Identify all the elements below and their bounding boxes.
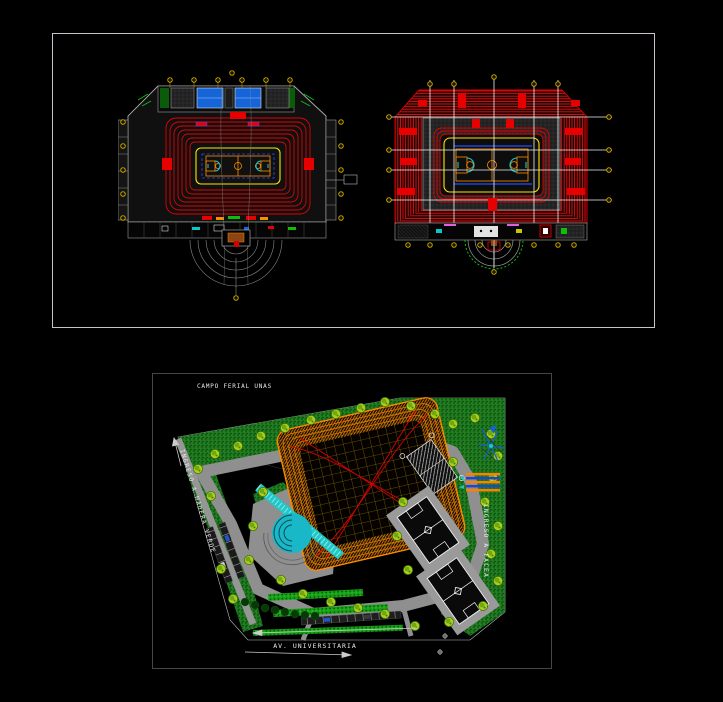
site-plan: CAMPO FERIAL UNAS INGRESO A MADERA VERDE…	[153, 374, 549, 666]
label-campo-ferial: CAMPO FERIAL UNAS	[197, 383, 272, 390]
first-floor-plan	[118, 70, 358, 306]
label-ingreso-facea: INGRESO A FACEA	[482, 504, 489, 578]
top-rooms-band	[138, 86, 314, 112]
upper-tier-plan	[384, 72, 614, 300]
survey-marks	[437, 633, 448, 655]
entrance-arcs	[465, 240, 523, 274]
bottom-rooms-band	[395, 223, 587, 240]
label-av-universitaria: AV. UNIVERSITARIA	[273, 642, 357, 650]
entrance-plaza-arcs	[190, 230, 282, 300]
cad-canvas: CAMPO FERIAL UNAS INGRESO A MADERA VERDE…	[0, 0, 723, 702]
